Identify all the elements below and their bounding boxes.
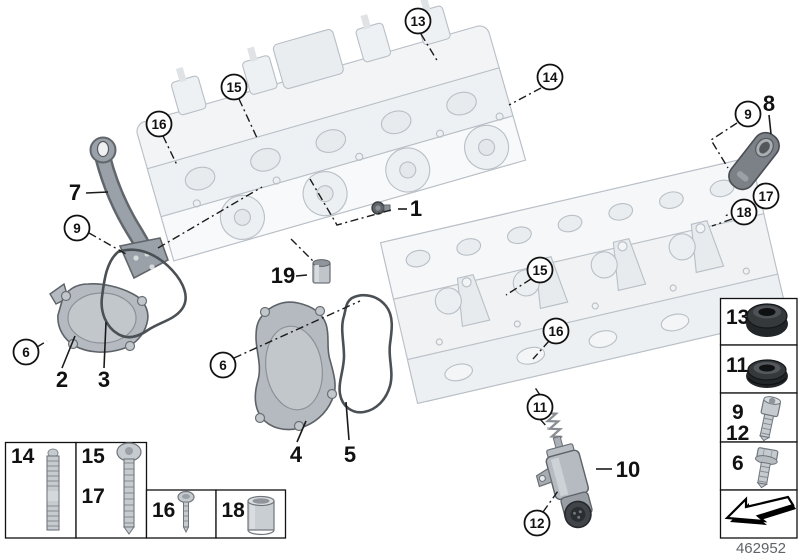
svg-text:16: 16 [151,117,167,132]
legend-cell-16[interactable]: 16 [147,490,217,538]
label-10[interactable]: 10 [616,457,640,482]
legend-cell-15-17[interactable]: 15 17 [76,443,147,539]
callout-15-left[interactable]: 15 [222,75,247,100]
svg-text:12: 12 [529,516,544,531]
diagram-canvas: 13 14 15 16 9 6 6 9 17 18 15 16 [0,0,800,560]
bushing-part-19 [313,260,330,283]
screw-plug-part-1 [372,202,390,214]
legend-cell-14[interactable]: 14 [6,443,77,539]
svg-text:13: 13 [726,306,749,329]
svg-text:11: 11 [726,354,749,377]
gasket-part-5 [340,295,392,412]
svg-text:14: 14 [542,70,558,85]
shaft-seal-icon [746,304,788,337]
legend-table-left: 14 15 17 [6,443,286,539]
svg-text:6: 6 [732,452,744,475]
legend-cell-11[interactable]: 11 [721,345,798,393]
label-2[interactable]: 2 [56,367,68,392]
svg-text:11: 11 [533,400,548,415]
callout-18[interactable]: 18 [732,200,757,225]
svg-text:18: 18 [222,499,246,522]
svg-text:16: 16 [548,324,564,339]
label-3[interactable]: 3 [98,367,110,392]
legend-cell-13[interactable]: 13 [721,299,798,346]
callout-15-right[interactable]: 15 [528,258,553,283]
callout-6-left[interactable]: 6 [14,340,39,365]
legend-cell-18[interactable]: 18 [216,490,286,538]
sleeve-icon [248,497,274,535]
cover-part-4 [255,302,336,430]
svg-text:14: 14 [11,445,35,468]
callout-13[interactable]: 13 [406,9,431,34]
diagram-number: 462952 [736,540,786,557]
cylinder-head-parts-diagram: 13 14 15 16 9 6 6 9 17 18 15 16 [0,0,800,560]
label-19[interactable]: 19 [271,263,295,288]
svg-text:15: 15 [226,80,242,95]
callout-14[interactable]: 14 [538,65,563,90]
callout-12[interactable]: 12 [525,511,550,536]
label-5[interactable]: 5 [344,442,356,467]
svg-text:9: 9 [73,221,81,236]
callout-16-left[interactable]: 16 [147,112,172,137]
cover-part-2 [50,284,148,352]
legend-cell-9-12[interactable]: 9 12 [721,393,798,445]
svg-text:6: 6 [22,345,30,360]
profile-gasket-icon [746,360,788,388]
svg-text:6: 6 [219,358,227,373]
label-8[interactable]: 8 [763,91,775,116]
legend-table-right: 13 11 9 12 [721,299,798,539]
svg-text:17: 17 [758,189,773,204]
callout-9-left[interactable]: 9 [65,216,90,241]
svg-text:15: 15 [532,263,548,278]
stud-icon [47,449,59,530]
label-1[interactable]: 1 [410,196,422,221]
svg-text:16: 16 [152,499,175,522]
callout-17[interactable]: 17 [754,184,779,209]
svg-text:17: 17 [82,485,105,508]
callout-11[interactable]: 11 [528,395,553,420]
callout-9-right[interactable]: 9 [736,102,761,127]
callout-6-middle[interactable]: 6 [211,353,236,378]
callout-16-right[interactable]: 16 [544,319,569,344]
label-4[interactable]: 4 [290,442,303,467]
svg-text:9: 9 [744,107,752,122]
legend-cell-arrow[interactable] [721,490,798,538]
legend-cell-6[interactable]: 6 [721,442,798,490]
left-cylinder-head-illustration [123,0,526,261]
svg-text:9: 9 [732,401,744,424]
svg-text:15: 15 [82,445,106,468]
label-7[interactable]: 7 [69,180,81,205]
svg-text:13: 13 [410,14,426,29]
svg-text:18: 18 [736,205,752,220]
